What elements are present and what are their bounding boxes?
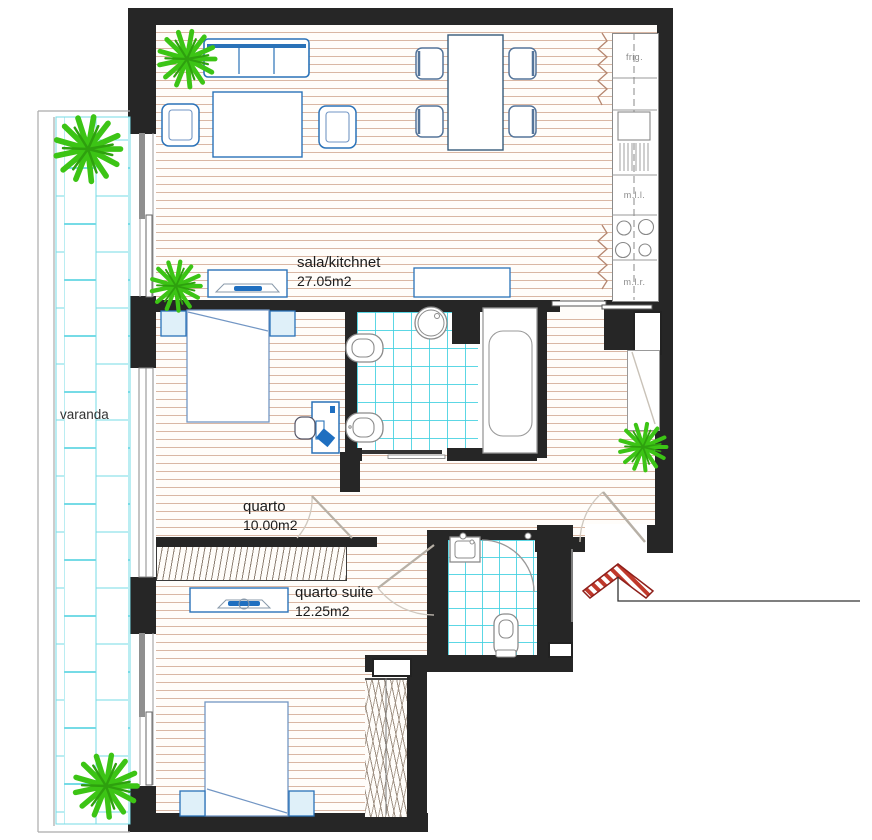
washing-machine-label: m.l.r. [612, 277, 657, 287]
plant-icon-balcony-top [56, 117, 120, 181]
wall-suitebath-north [433, 530, 548, 540]
suite-balcony-slider [139, 633, 153, 785]
wall-left-corner [128, 8, 156, 134]
wall-suite-top [156, 537, 377, 547]
wall-top [128, 8, 673, 25]
entry-opening [585, 524, 647, 554]
suitebath-notch [548, 642, 573, 658]
suite-wardrobe [365, 678, 407, 817]
wall-bath-east [533, 312, 547, 458]
floor-plan: sala/kitchnet 27.05m2 quarto 10.00m2 qua… [0, 0, 872, 840]
suite-label-block: quarto suite 12.25m2 [295, 584, 373, 620]
wall-right-upper [657, 8, 673, 312]
sala-floor [156, 25, 657, 312]
room-area-sala: 27.05m2 [297, 273, 380, 291]
wall-kitchen-block [604, 302, 636, 350]
wall-sala-divider-w [156, 300, 560, 312]
wall-left-2 [128, 296, 156, 368]
wall-bath-south-e [447, 448, 537, 461]
sala-label-block: sala/kitchnet 27.05m2 [297, 254, 380, 290]
wall-bath-column [452, 308, 480, 344]
room-name-suite: quarto suite [295, 584, 373, 603]
quarto-wardrobe [156, 545, 347, 581]
room-area-suite: 12.25m2 [295, 603, 373, 621]
wall-left-3 [128, 577, 156, 634]
wall-entry-right [647, 525, 673, 553]
room-name-quarto: quarto [243, 498, 297, 517]
room-name-varanda: varanda [60, 407, 109, 422]
wall-hall-column [340, 452, 360, 492]
balcony [38, 111, 130, 832]
suite-bathroom-floor [448, 540, 545, 655]
quarto-label-block: quarto 10.00m2 [243, 498, 297, 534]
fridge-label: frig. [612, 52, 657, 62]
wall-bath-west [345, 312, 357, 458]
dishwasher-label: m.l.l. [612, 190, 657, 200]
duct-box [633, 311, 662, 355]
suite-shaft [372, 658, 412, 677]
quarto-window [139, 368, 153, 577]
wall-suitebath-west [427, 530, 448, 662]
room-area-quarto: 10.00m2 [243, 517, 297, 535]
bathtub-zone [478, 312, 533, 451]
entrance-arrow [572, 549, 860, 622]
sala-balcony-slider [139, 133, 153, 297]
hall-closet [627, 350, 660, 431]
wall-suite-east [407, 672, 427, 832]
room-name-sala: sala/kitchnet [297, 254, 380, 273]
kitchen-counter [612, 33, 659, 302]
